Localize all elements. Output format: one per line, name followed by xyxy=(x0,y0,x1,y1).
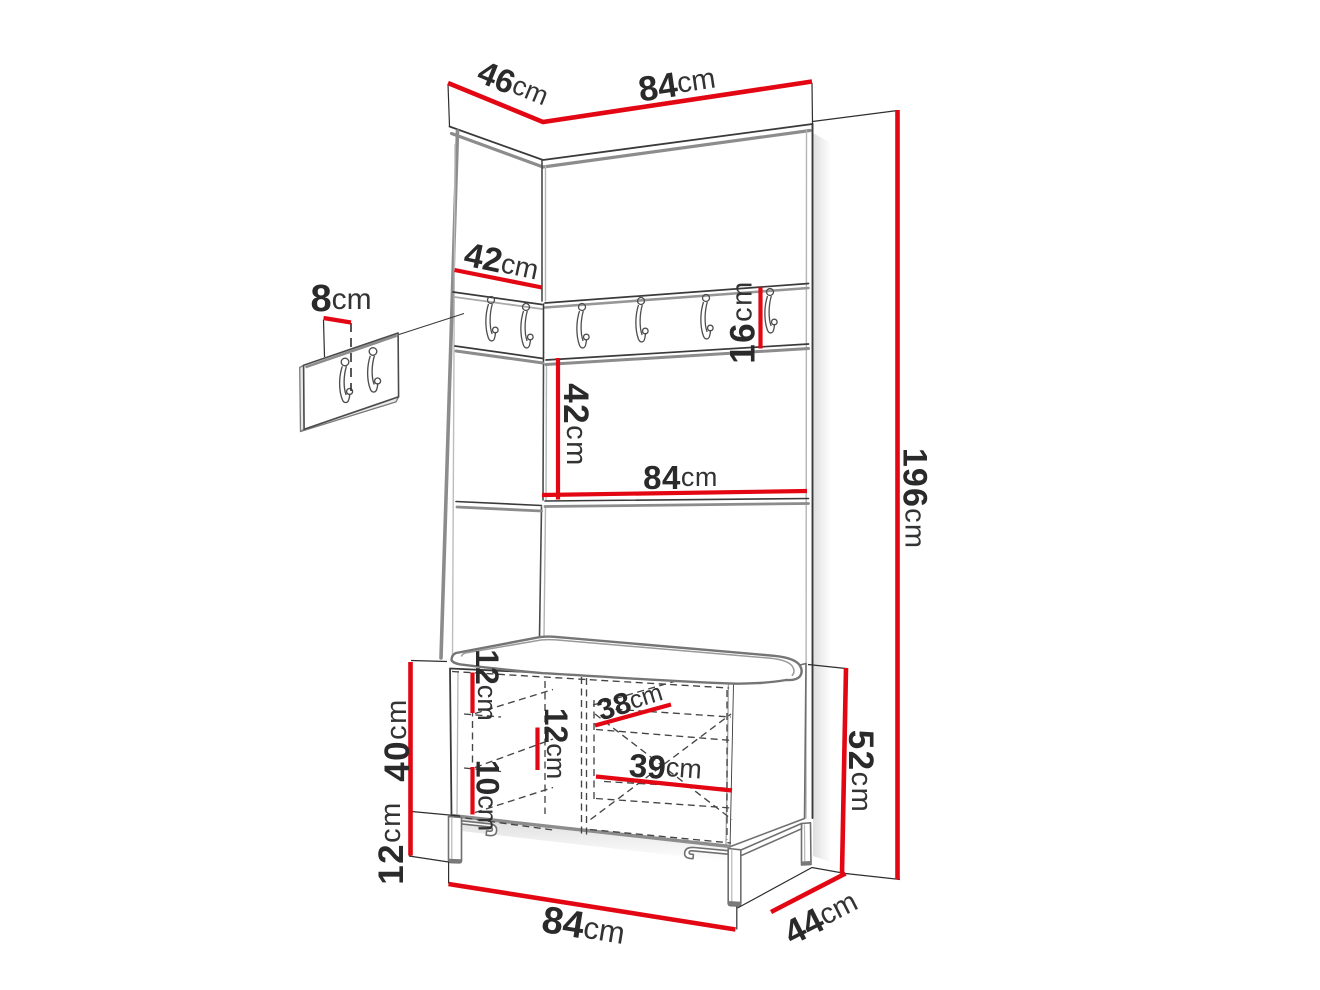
svg-text:8cm: 8cm xyxy=(310,278,371,320)
svg-text:84cm: 84cm xyxy=(643,459,718,496)
svg-text:196cm: 196cm xyxy=(896,448,934,549)
svg-text:42cm: 42cm xyxy=(557,383,596,467)
svg-text:52cm: 52cm xyxy=(842,730,881,814)
svg-text:10cm: 10cm xyxy=(470,760,506,832)
svg-text:12cm: 12cm xyxy=(469,649,505,721)
svg-text:12cm: 12cm xyxy=(372,801,411,885)
svg-text:12cm: 12cm xyxy=(538,708,574,780)
svg-text:40cm: 40cm xyxy=(378,698,417,782)
svg-text:16cm: 16cm xyxy=(723,280,762,364)
